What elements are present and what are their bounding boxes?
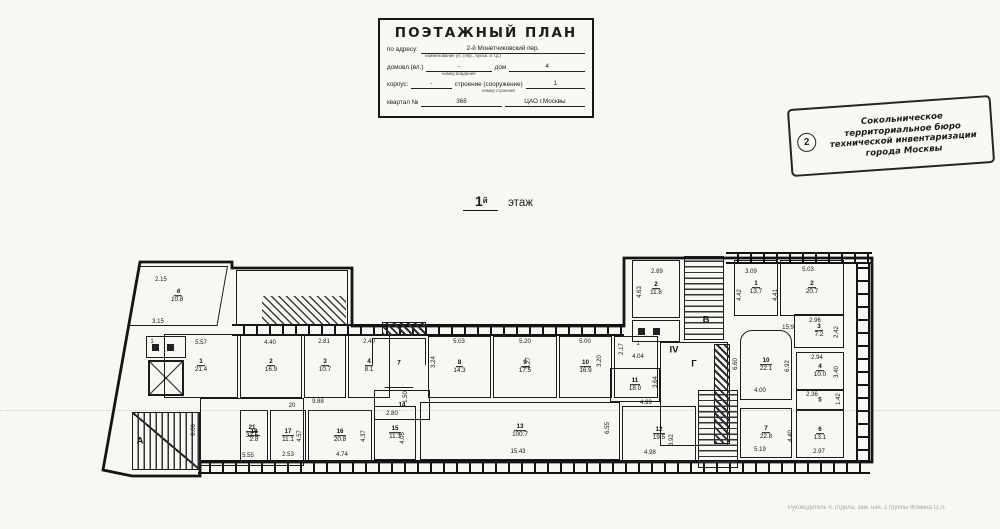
dimension-label: 4.00 (754, 388, 766, 394)
dimension-label: 5.55 (242, 453, 254, 459)
dimension-label: 2.15 (155, 277, 167, 283)
room-label: 1118.0 (611, 377, 659, 392)
dimension-label: 4.37 (361, 430, 367, 442)
dimension-label: 3.27 (526, 357, 532, 369)
stair-diag-shape (262, 296, 346, 324)
dimension-label: 4.05 (400, 432, 406, 444)
room-label: 722.8 (741, 425, 791, 440)
dimension-label: 3.24 (431, 356, 437, 368)
dimension-label: 3.09 (745, 269, 757, 275)
room-label: 310.7 (305, 358, 345, 373)
dimension-label: 2.81 (318, 339, 330, 345)
room-label: 2133.6 (201, 424, 303, 439)
scanned-floor-plan-page: ПОЭТАЖНЫЙ ПЛАН по адресу: 2-й Монетчиков… (0, 0, 1000, 529)
dimension-label: 2.42 (834, 326, 840, 338)
dimension-label: 4.04 (632, 354, 644, 360)
room-label: 613.1 (797, 426, 843, 441)
dimension-label: 1 (636, 341, 639, 347)
dimension-label: 20 (289, 403, 296, 409)
dimension-label: 2.97 (813, 449, 825, 455)
dimension-label: 4.98 (644, 450, 656, 456)
stairwell-letter: IV (670, 345, 679, 356)
dimension-label: 2.89 (651, 269, 663, 275)
dimension-label: 15.43 (510, 449, 525, 455)
dimension-label: 6.55 (605, 422, 611, 434)
dimension-label: 4.40 (788, 430, 794, 442)
dimension-label: 4.41 (773, 289, 779, 301)
room-label: 1511.3 (375, 425, 415, 440)
dimension-label: 6.92 (785, 360, 791, 372)
dimension-label: 6.60 (733, 358, 739, 370)
dimension-label: 4.42 (737, 289, 743, 301)
room: 814.3 (428, 336, 491, 398)
dimension-label: 9.88 (312, 399, 324, 405)
dimension-label: 2.80 (386, 411, 398, 417)
dimension-label: 1.42 (836, 393, 842, 405)
signature-note: Руководитель п. отдела, зам. нач. 2 груп… (788, 505, 998, 511)
room-label: 216.9 (241, 358, 301, 373)
room-label: 814.3 (429, 359, 490, 374)
dimension-label: 4.63 (637, 286, 643, 298)
rungs-shape (684, 256, 724, 340)
solid-hatch-shape (382, 322, 426, 336)
room-label: 220.7 (781, 280, 843, 295)
dimension-label: 2.36 (806, 392, 818, 398)
rungs-shape (698, 390, 738, 468)
dimension-label: 6.06 (191, 424, 197, 436)
dimension-label: 3.64 (653, 376, 659, 388)
dimension-label: 4.57 (297, 430, 303, 442)
dimension-label: 2.94 (811, 355, 823, 361)
window-wall (856, 262, 870, 462)
room-label: 13100.7 (421, 423, 619, 438)
skew-shape: 610.8 (127, 266, 228, 326)
scan-artifact-line (0, 410, 1000, 411)
room-label: 1016.9 (560, 359, 611, 374)
dimension-label: 5.19 (754, 447, 766, 453)
room: 1219.5 (622, 406, 696, 462)
dimension-label: 1.50 (403, 391, 409, 403)
dimension-label: 3.40 (834, 366, 840, 378)
dimension-label: 3.15 (152, 319, 164, 325)
room-label: 1219.5 (623, 426, 695, 441)
stairwell-letter: Г (691, 359, 696, 370)
dimension-label: 1 (150, 339, 153, 345)
dimension-label: 2.17 (619, 343, 625, 355)
dimension-label: 5.03 (453, 339, 465, 345)
room: 1016.9 (559, 336, 612, 398)
elev-shape (148, 360, 184, 396)
dimension-label: 4.99 (640, 400, 652, 406)
dimension-label: 15.9 (782, 325, 794, 331)
dimension-label: 5.03 (802, 267, 814, 273)
dimension-label: 5.00 (579, 339, 591, 345)
stairwell-letter: А (137, 436, 144, 447)
room-label: 917.5 (494, 359, 556, 374)
dimension-label: 5.20 (519, 339, 531, 345)
dimension-label: 2.96 (809, 318, 821, 324)
room: 917.5 (493, 336, 557, 398)
wc-shape (632, 320, 680, 342)
room-label: 610.8 (132, 288, 223, 303)
dimension-label: 2.40 (363, 339, 375, 345)
dimension-label: 4.74 (336, 452, 348, 458)
dimension-label: 2.53 (282, 452, 294, 458)
room-label: 7 (373, 359, 425, 366)
dimension-label: 3.92 (669, 434, 675, 446)
stairwell-letter: В (703, 315, 710, 326)
dimension-label: 5.57 (195, 340, 207, 346)
room-label: 1022.1 (741, 357, 791, 372)
dimension-label: 3.20 (597, 355, 603, 367)
floor-plan: 610.8121.4216.9310.748.1714814.3917.5101… (0, 0, 1000, 529)
dimension-label: 4.40 (264, 340, 276, 346)
